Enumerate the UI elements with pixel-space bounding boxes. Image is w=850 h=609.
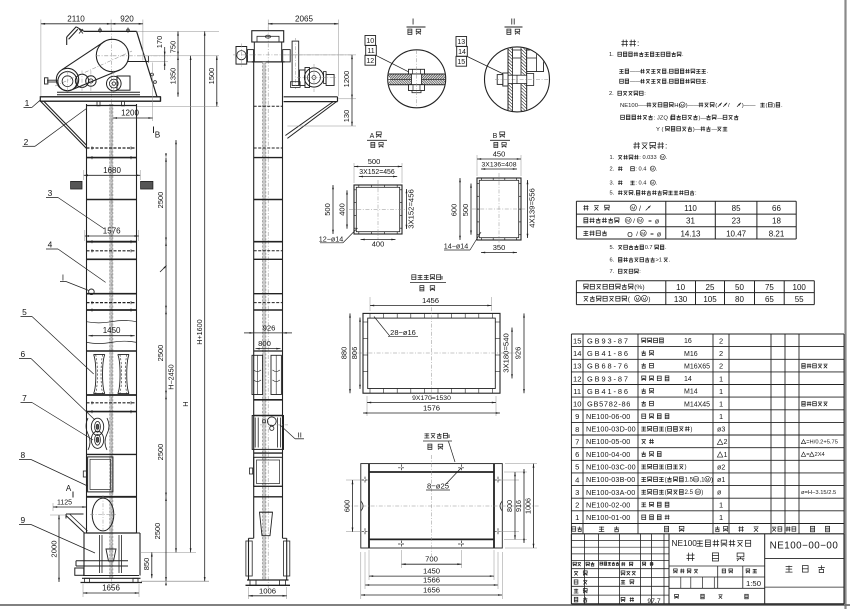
svg-text:)—: )— (699, 115, 707, 121)
svg-text:8: 8 (575, 425, 579, 434)
svg-text:NE100-03B-00: NE100-03B-00 (586, 475, 635, 484)
svg-text:)—: )— (693, 127, 701, 133)
svg-text:NE100-04-00: NE100-04-00 (586, 450, 630, 459)
svg-text:ø2: ø2 (717, 464, 725, 472)
svg-text:10: 10 (676, 283, 685, 292)
svg-text:M: M (642, 296, 646, 301)
svg-text:105: 105 (703, 295, 717, 304)
svg-text:800: 800 (258, 339, 271, 348)
svg-text:14−ø14: 14−ø14 (444, 242, 469, 251)
svg-text:2500: 2500 (156, 345, 165, 362)
svg-text:5.: 5. (610, 191, 615, 197)
svg-text:600: 600 (343, 500, 352, 513)
svg-text:NE100-06-00: NE100-06-00 (586, 412, 630, 421)
svg-text:=: = (650, 232, 654, 238)
svg-text:350: 350 (493, 243, 506, 252)
svg-text:1:50: 1:50 (746, 579, 761, 588)
svg-text:(: ( (766, 103, 768, 109)
svg-text:916: 916 (514, 500, 523, 512)
svg-text:15: 15 (457, 59, 465, 66)
svg-text:2: 2 (724, 438, 728, 446)
svg-text:850: 850 (142, 558, 151, 571)
svg-text:880: 880 (340, 347, 349, 360)
svg-text:11: 11 (367, 48, 374, 55)
svg-text:1450: 1450 (103, 326, 121, 335)
svg-text:14: 14 (458, 49, 466, 56)
svg-text:1125: 1125 (57, 500, 72, 507)
svg-text:3.: 3. (610, 181, 615, 187)
svg-text:8: 8 (20, 450, 25, 460)
svg-text:ø: ø (717, 489, 722, 497)
svg-text:1: 1 (719, 374, 723, 383)
svg-text:M: M (651, 166, 654, 171)
svg-text:3X136=408: 3X136=408 (482, 162, 517, 169)
svg-text:8−ø25: 8−ø25 (427, 482, 449, 491)
svg-text:4: 4 (575, 475, 579, 484)
svg-text:,1: ,1 (699, 476, 705, 483)
svg-text:): ) (711, 476, 713, 483)
svg-text:M: M (694, 477, 698, 482)
svg-text:8.21: 8.21 (769, 229, 785, 238)
svg-text:GB5782-86: GB5782-86 (587, 400, 631, 409)
svg-text:M: M (661, 155, 664, 160)
svg-text:25: 25 (706, 283, 715, 292)
svg-text:/: / (639, 206, 641, 213)
svg-text:2065: 2065 (295, 15, 314, 24)
svg-text:1576: 1576 (103, 226, 121, 235)
svg-text:5: 5 (575, 463, 579, 472)
svg-text:1: 1 (575, 513, 579, 522)
svg-text:M: M (696, 490, 700, 495)
svg-text:——: —— (630, 79, 642, 85)
svg-text:1006: 1006 (524, 498, 533, 514)
svg-text:170: 170 (155, 36, 164, 49)
svg-text:10.47: 10.47 (726, 229, 747, 238)
svg-text:600: 600 (450, 204, 459, 217)
svg-text:1: 1 (719, 513, 723, 522)
svg-text:3: 3 (48, 188, 53, 198)
svg-text:)——: )—— (686, 103, 700, 109)
svg-text:2X4: 2X4 (815, 452, 826, 458)
svg-text:GB41-86: GB41-86 (587, 349, 630, 358)
svg-text:ø1: ø1 (717, 476, 725, 484)
svg-text:500: 500 (368, 157, 381, 166)
svg-text:M: M (626, 218, 630, 223)
svg-text:/: / (633, 218, 635, 225)
svg-text:7: 7 (22, 393, 27, 403)
svg-text:2000: 2000 (50, 540, 59, 557)
svg-text:400: 400 (338, 203, 347, 216)
svg-text:: 0.4: : 0.4 (635, 181, 646, 187)
svg-text:H+1600: H+1600 (195, 319, 204, 344)
svg-text:10: 10 (366, 38, 374, 45)
svg-text:13: 13 (457, 39, 465, 46)
svg-text:18: 18 (772, 217, 781, 226)
svg-text:1: 1 (719, 412, 723, 421)
svg-text:450: 450 (493, 150, 506, 159)
svg-text:NE100-03A-00: NE100-03A-00 (586, 488, 635, 497)
svg-text:2110: 2110 (67, 15, 85, 24)
svg-text:——: —— (630, 69, 642, 75)
svg-text:H(: H( (674, 103, 680, 109)
svg-text:28−ø16: 28−ø16 (390, 328, 416, 337)
svg-text:NE100−00−00: NE100−00−00 (770, 541, 839, 552)
svg-text:NE100-01-00: NE100-01-00 (586, 513, 630, 522)
svg-text:1: 1 (25, 98, 30, 108)
svg-text:): ) (773, 103, 775, 109)
svg-text:97.7: 97.7 (647, 598, 660, 605)
svg-text:926: 926 (514, 347, 523, 360)
svg-text:: 0.033: : 0.033 (639, 155, 656, 161)
svg-text:NE100-03C-00: NE100-03C-00 (586, 463, 636, 472)
svg-text:ø3: ø3 (717, 426, 725, 434)
svg-text:750: 750 (169, 41, 178, 54)
svg-text:31: 31 (686, 217, 695, 226)
svg-text:II: II (511, 17, 516, 27)
svg-text:6: 6 (575, 450, 579, 459)
svg-text:GB68-76: GB68-76 (587, 362, 630, 371)
svg-text:1.5: 1.5 (685, 476, 694, 483)
svg-text:3: 3 (575, 488, 579, 497)
svg-text:B: B (493, 133, 498, 140)
svg-text:14: 14 (573, 349, 581, 358)
svg-text:100: 100 (793, 283, 807, 292)
svg-text::: : (665, 140, 667, 150)
svg-text:2500: 2500 (156, 192, 165, 209)
svg-text:M: M (631, 206, 635, 212)
svg-text:65: 65 (765, 295, 774, 304)
svg-text:2.: 2. (609, 91, 614, 97)
svg-text:700: 700 (425, 555, 438, 564)
svg-text:55: 55 (795, 295, 804, 304)
svg-text:M: M (636, 296, 640, 301)
svg-text:2500: 2500 (153, 523, 162, 540)
svg-text:75: 75 (765, 283, 774, 292)
svg-text:=H/0.2+5.75: =H/0.2+5.75 (806, 440, 838, 446)
svg-text:85: 85 (732, 204, 741, 213)
svg-text:II: II (298, 431, 302, 440)
svg-text:(%): (%) (634, 284, 644, 291)
svg-text:10: 10 (573, 400, 581, 409)
svg-text:2: 2 (24, 137, 29, 147)
svg-text:1: 1 (719, 400, 723, 409)
svg-text:130: 130 (342, 110, 351, 123)
svg-text:6: 6 (20, 349, 25, 359)
svg-text:800: 800 (505, 500, 514, 512)
svg-text:4X139=556: 4X139=556 (528, 188, 537, 228)
svg-text:5: 5 (22, 307, 27, 317)
svg-text:50: 50 (735, 283, 744, 292)
svg-text:3X180=540: 3X180=540 (502, 333, 511, 373)
svg-text:)——: )—— (742, 103, 756, 109)
svg-text:1200: 1200 (121, 108, 139, 117)
svg-text:3X152=456: 3X152=456 (359, 169, 395, 176)
svg-text:14: 14 (684, 376, 692, 383)
svg-text:I: I (412, 17, 414, 27)
svg-text:926: 926 (263, 323, 276, 332)
svg-text:7: 7 (575, 437, 579, 446)
svg-text:12: 12 (573, 374, 581, 383)
svg-text:M16X65: M16X65 (684, 364, 710, 371)
svg-text:6.: 6. (610, 258, 615, 264)
svg-text:Ⅱ: Ⅱ (441, 276, 443, 281)
svg-text:): ) (648, 296, 650, 303)
svg-text:NE100-03D-00: NE100-03D-00 (586, 425, 636, 434)
svg-text:1: 1 (724, 451, 728, 459)
svg-text:M14X45: M14X45 (684, 401, 710, 408)
svg-text:1500: 1500 (207, 68, 216, 85)
svg-text:A: A (370, 133, 375, 140)
svg-text:2.5: 2.5 (685, 489, 694, 496)
svg-text:NE100——: NE100—— (620, 103, 650, 109)
svg-text:1456: 1456 (422, 296, 439, 305)
svg-text:9X170=1530: 9X170=1530 (412, 395, 451, 402)
svg-text:M: M (651, 180, 654, 185)
svg-text:2: 2 (719, 362, 723, 371)
svg-text:): ) (701, 489, 703, 496)
svg-text:M: M (706, 477, 710, 482)
svg-text:Y (: Y ( (656, 127, 663, 133)
svg-text:=: = (648, 219, 652, 225)
svg-text:806: 806 (350, 347, 359, 360)
svg-text:H−2450: H−2450 (166, 364, 175, 389)
svg-text:1450: 1450 (423, 567, 440, 576)
svg-text:—: — (717, 115, 723, 121)
svg-text:1656: 1656 (102, 584, 120, 593)
svg-text:2.: 2. (610, 167, 615, 173)
svg-text:ø=H−3.15/2.5: ø=H−3.15/2.5 (801, 490, 836, 496)
svg-text:2: 2 (719, 336, 723, 345)
svg-text:1350: 1350 (169, 68, 178, 85)
svg-text:NE100-02-00: NE100-02-00 (586, 500, 630, 509)
svg-text:GB93-87: GB93-87 (587, 374, 630, 383)
svg-text:2: 2 (719, 349, 723, 358)
svg-text:(: ( (715, 103, 717, 109)
svg-text:0.7: 0.7 (645, 245, 653, 251)
svg-text:110: 110 (684, 204, 697, 213)
svg-text:12−ø14: 12−ø14 (319, 235, 344, 244)
svg-text:15: 15 (573, 336, 581, 345)
svg-text:Ⅱ: Ⅱ (448, 434, 450, 439)
svg-text:NE100: NE100 (672, 538, 698, 548)
svg-text:5.: 5. (610, 245, 615, 251)
svg-text:23: 23 (732, 217, 741, 226)
svg-text:9: 9 (20, 515, 25, 525)
svg-text:GB41-86: GB41-86 (587, 387, 630, 396)
svg-text:M: M (641, 231, 645, 236)
svg-text:66: 66 (772, 204, 781, 213)
svg-text:>1: >1 (656, 258, 662, 264)
svg-text:ø: ø (655, 219, 660, 226)
svg-text:ø: ø (657, 232, 662, 239)
svg-text:M16: M16 (684, 351, 698, 358)
svg-text:920: 920 (120, 15, 134, 24)
svg-text:H: H (181, 401, 190, 406)
svg-text:11: 11 (573, 387, 581, 396)
svg-text:O: O (627, 232, 633, 239)
svg-text:: JZQ (: : JZQ ( (654, 115, 672, 121)
svg-text:NE100-05-00: NE100-05-00 (586, 437, 630, 446)
svg-text:/: / (636, 231, 638, 238)
svg-text:): ) (685, 464, 687, 471)
svg-text:1200: 1200 (342, 71, 351, 88)
svg-text:400: 400 (372, 240, 385, 249)
svg-text:1: 1 (719, 501, 723, 510)
svg-text:7.: 7. (610, 269, 615, 275)
svg-text:12: 12 (366, 58, 374, 65)
svg-text::: : (637, 38, 639, 48)
svg-text:80: 80 (735, 295, 744, 304)
svg-text:M14: M14 (684, 389, 698, 396)
svg-text:: 0.4: : 0.4 (635, 167, 646, 173)
svg-text:—: — (712, 127, 718, 133)
svg-text:500: 500 (461, 204, 470, 217)
svg-text:1006: 1006 (259, 586, 276, 595)
svg-text:): ) (690, 426, 692, 433)
svg-text:M: M (638, 218, 642, 223)
svg-text:500: 500 (323, 203, 332, 216)
svg-text:14.13: 14.13 (680, 229, 701, 238)
svg-text:B: B (155, 131, 161, 140)
svg-text:1.: 1. (609, 52, 614, 58)
svg-text:1.: 1. (610, 155, 615, 161)
svg-text:1576: 1576 (423, 404, 440, 413)
svg-text:130: 130 (674, 295, 688, 304)
svg-text:16: 16 (684, 338, 692, 345)
svg-text:A: A (66, 484, 72, 493)
svg-text:1656: 1656 (423, 586, 440, 595)
svg-text:3X152=456: 3X152=456 (407, 189, 416, 229)
svg-text:1: 1 (719, 387, 723, 396)
svg-text:4: 4 (48, 240, 53, 250)
svg-text:9: 9 (575, 412, 579, 421)
svg-text:2500: 2500 (156, 444, 165, 461)
svg-text:GB93-87: GB93-87 (587, 336, 630, 345)
svg-text:1680: 1680 (103, 166, 121, 175)
svg-text:1566: 1566 (423, 575, 440, 584)
svg-text:13: 13 (573, 362, 581, 371)
svg-text:2: 2 (575, 501, 579, 510)
